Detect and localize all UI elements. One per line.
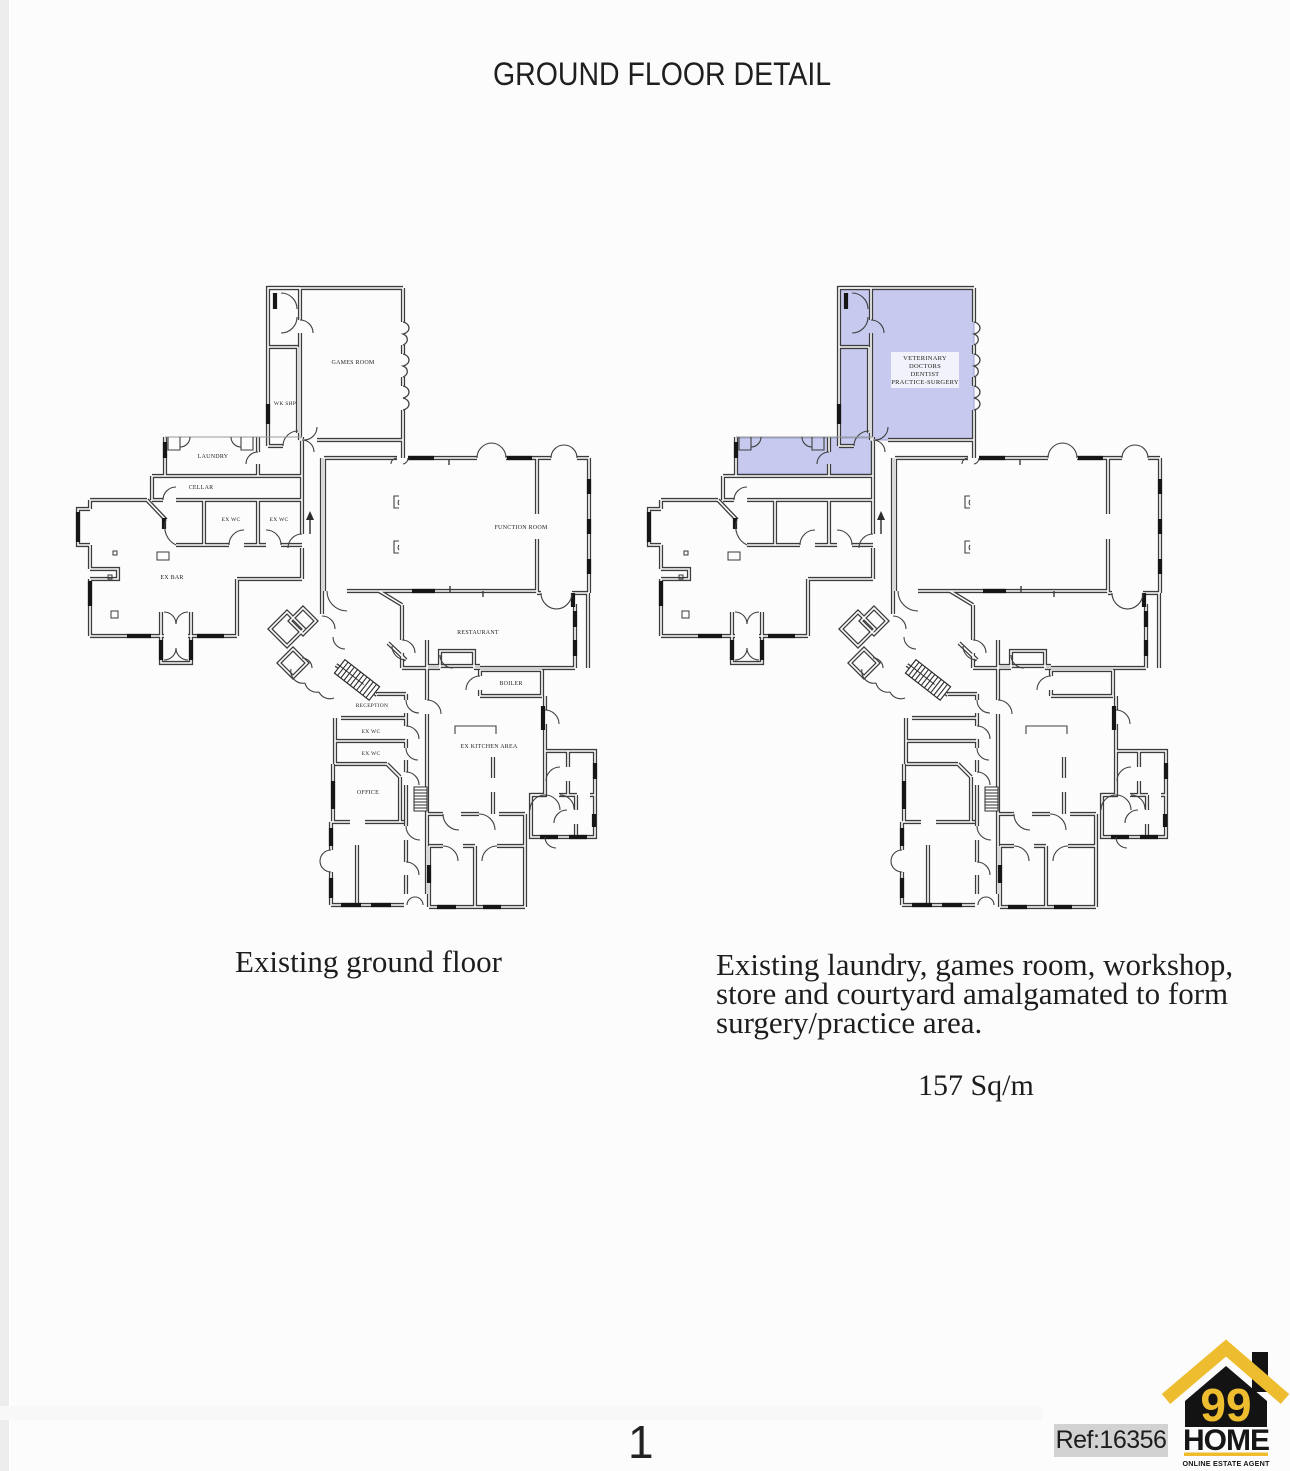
svg-text:DENTIST: DENTIST bbox=[911, 371, 940, 378]
svg-text:RESTAURANT: RESTAURANT bbox=[457, 630, 499, 636]
svg-text:LAUNDRY: LAUNDRY bbox=[198, 454, 229, 460]
svg-text:RECEPTION: RECEPTION bbox=[356, 703, 389, 709]
svg-text:EX WC: EX WC bbox=[362, 751, 381, 757]
svg-text:EX WC: EX WC bbox=[222, 517, 241, 523]
svg-text:ONLINE ESTATE AGENT: ONLINE ESTATE AGENT bbox=[1182, 1459, 1270, 1468]
svg-text:WK SHP: WK SHP bbox=[274, 401, 296, 407]
svg-text:BOILER: BOILER bbox=[499, 681, 522, 687]
svg-text:OFFICE: OFFICE bbox=[357, 790, 379, 796]
svg-text:DOCTORS: DOCTORS bbox=[909, 363, 941, 370]
svg-text:PRACTICE-SURGERY: PRACTICE-SURGERY bbox=[891, 379, 959, 386]
svg-text:EX KITCHEN AREA: EX KITCHEN AREA bbox=[460, 744, 517, 750]
svg-text:EX BAR: EX BAR bbox=[160, 575, 183, 581]
svg-text:EX WC: EX WC bbox=[362, 729, 381, 735]
svg-text:FUNCTION ROOM: FUNCTION ROOM bbox=[494, 525, 548, 531]
svg-text:EX WC: EX WC bbox=[270, 517, 289, 523]
svg-text:VETERINARY: VETERINARY bbox=[903, 355, 947, 362]
svg-text:HOME: HOME bbox=[1183, 1424, 1269, 1457]
svg-text:CELLAR: CELLAR bbox=[189, 485, 214, 491]
svg-text:GAMES ROOM: GAMES ROOM bbox=[331, 360, 374, 366]
